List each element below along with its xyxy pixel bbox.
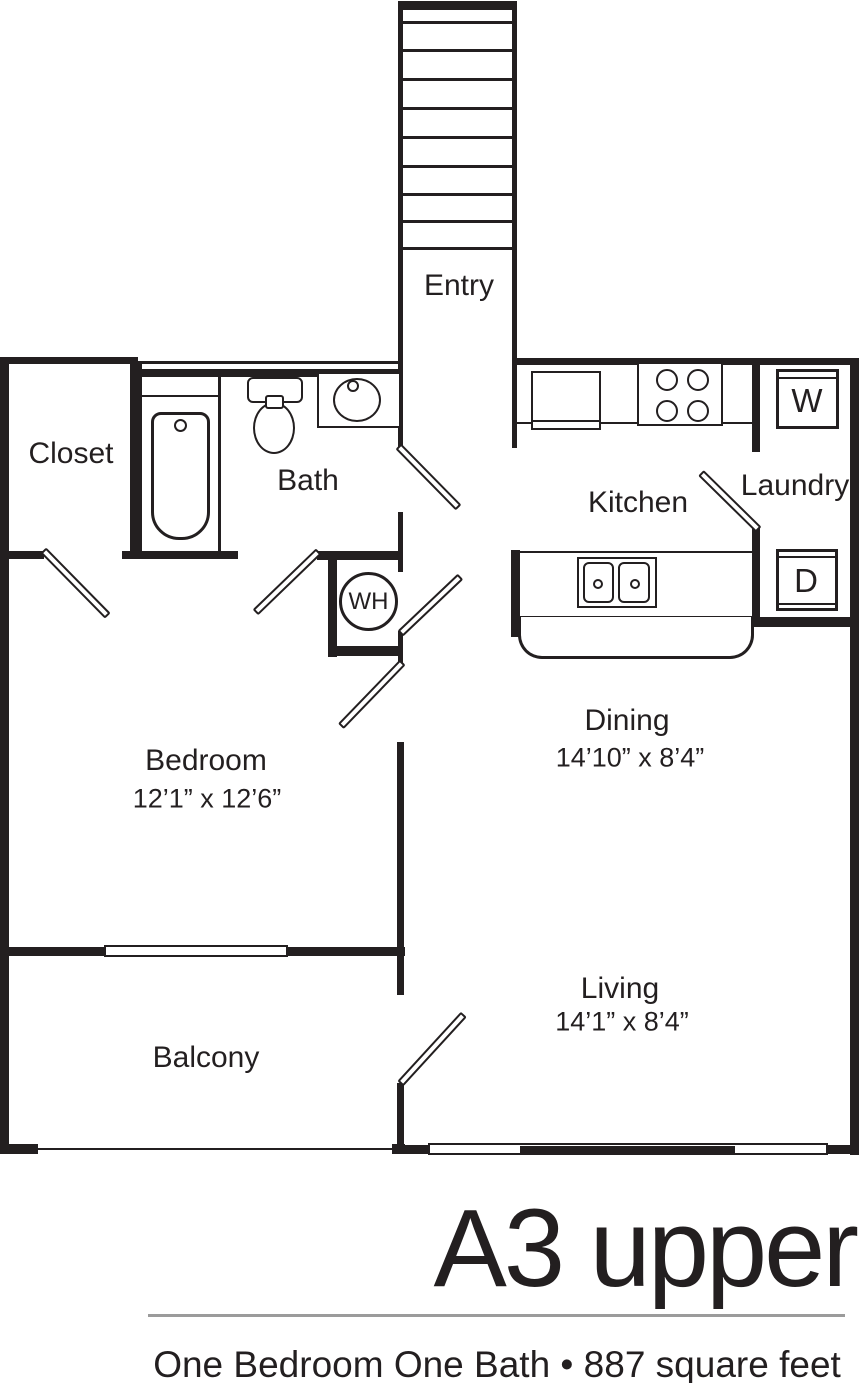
balcony-rail — [6, 1148, 396, 1150]
water-heater: WH — [339, 572, 398, 631]
wall-top-closet — [0, 357, 138, 364]
room-label-balcony: Balcony — [153, 1041, 260, 1075]
stair-tread — [403, 165, 512, 168]
plan-description: One Bedroom One Bath • 887 square feet — [153, 1344, 841, 1383]
wall-bath-bottom-a — [0, 551, 44, 559]
water-heater-label: WH — [342, 575, 395, 628]
room-label-bedroom: Bedroom — [145, 744, 267, 778]
wall-wh-left — [328, 551, 337, 657]
wall-bedroom-dining — [397, 742, 404, 995]
stove-burner — [687, 369, 709, 391]
wall-wh-bottom — [328, 646, 402, 656]
wall-left — [0, 357, 9, 1153]
bedroom-door-swing — [338, 660, 406, 730]
toilet-seat-hinge — [265, 395, 284, 409]
stair-tread — [403, 247, 512, 250]
refrigerator-line — [533, 420, 599, 422]
stair-wall-top — [398, 1, 517, 10]
wall-bath-bottom-b — [122, 551, 238, 559]
wall-living-balcony — [397, 1083, 404, 1153]
room-label-living: Living — [581, 972, 659, 1006]
bath-sink-faucet — [347, 380, 359, 392]
wall-right — [850, 358, 859, 1155]
wall-kitchen-laundry-upper — [752, 360, 760, 452]
stair-tread — [403, 107, 512, 110]
closet-door-swing — [40, 547, 110, 618]
room-dims-living: 14’1” x 8’4” — [555, 1007, 689, 1038]
washer-lid-line — [779, 377, 836, 379]
window — [104, 945, 288, 957]
stair-tread — [403, 136, 512, 139]
wall-hall-right — [512, 358, 517, 448]
entry-label: Entry — [424, 269, 494, 303]
wall-top-bath-thin — [138, 361, 403, 364]
stair-tread — [403, 220, 512, 223]
wall-tub-right — [218, 373, 221, 553]
toilet-bowl — [253, 402, 295, 454]
stair-tread — [403, 78, 512, 81]
stove-burner — [687, 400, 709, 422]
stove-burner — [656, 369, 678, 391]
stair-tread — [403, 193, 512, 196]
wall-closet-right — [130, 362, 142, 553]
bathtub-drain — [174, 419, 187, 432]
bedroom-bath-door-swing — [253, 548, 322, 615]
stove — [637, 362, 723, 426]
washer-label: W — [791, 382, 822, 420]
room-label-dining: Dining — [584, 704, 669, 738]
wall-hall-stub — [398, 512, 403, 572]
wall-kitchen-laundry-lower — [752, 527, 760, 619]
floor-plan: Entry WH — [0, 0, 859, 1383]
room-label-laundry: Laundry — [741, 469, 849, 503]
bath-door-swing — [395, 443, 461, 510]
water-heater-door-swing — [398, 574, 464, 637]
kitchen-sink-drain — [630, 579, 640, 589]
room-dims-bedroom: 12’1” x 12’6” — [133, 784, 282, 815]
kitchen-sink-drain — [593, 579, 603, 589]
room-dims-dining: 14’10” x 8’4” — [556, 743, 705, 774]
room-label-kitchen: Kitchen — [588, 486, 688, 520]
dryer-base-line — [779, 603, 835, 605]
stair-wall-left — [398, 1, 403, 362]
stair-tread — [403, 21, 512, 24]
stair-tread — [403, 49, 512, 52]
wall-living-bottom-a — [403, 1145, 430, 1154]
room-label-bath: Bath — [277, 464, 339, 498]
room-label-closet: Closet — [28, 437, 113, 471]
title-divider — [148, 1314, 845, 1317]
breakfast-bar — [518, 617, 754, 659]
dryer-lid-line — [779, 556, 835, 558]
wall-living-bottom-b — [826, 1145, 852, 1154]
dryer-label: D — [794, 562, 818, 600]
stair-wall-right — [512, 1, 517, 358]
balcony-door-swing — [397, 1012, 466, 1087]
stove-burner — [656, 400, 678, 422]
tub-deck-line — [142, 395, 218, 397]
wall-laundry-bottom — [752, 617, 859, 627]
sliding-glass-door-panel — [520, 1146, 735, 1153]
plan-title: A3 upper — [434, 1194, 856, 1304]
